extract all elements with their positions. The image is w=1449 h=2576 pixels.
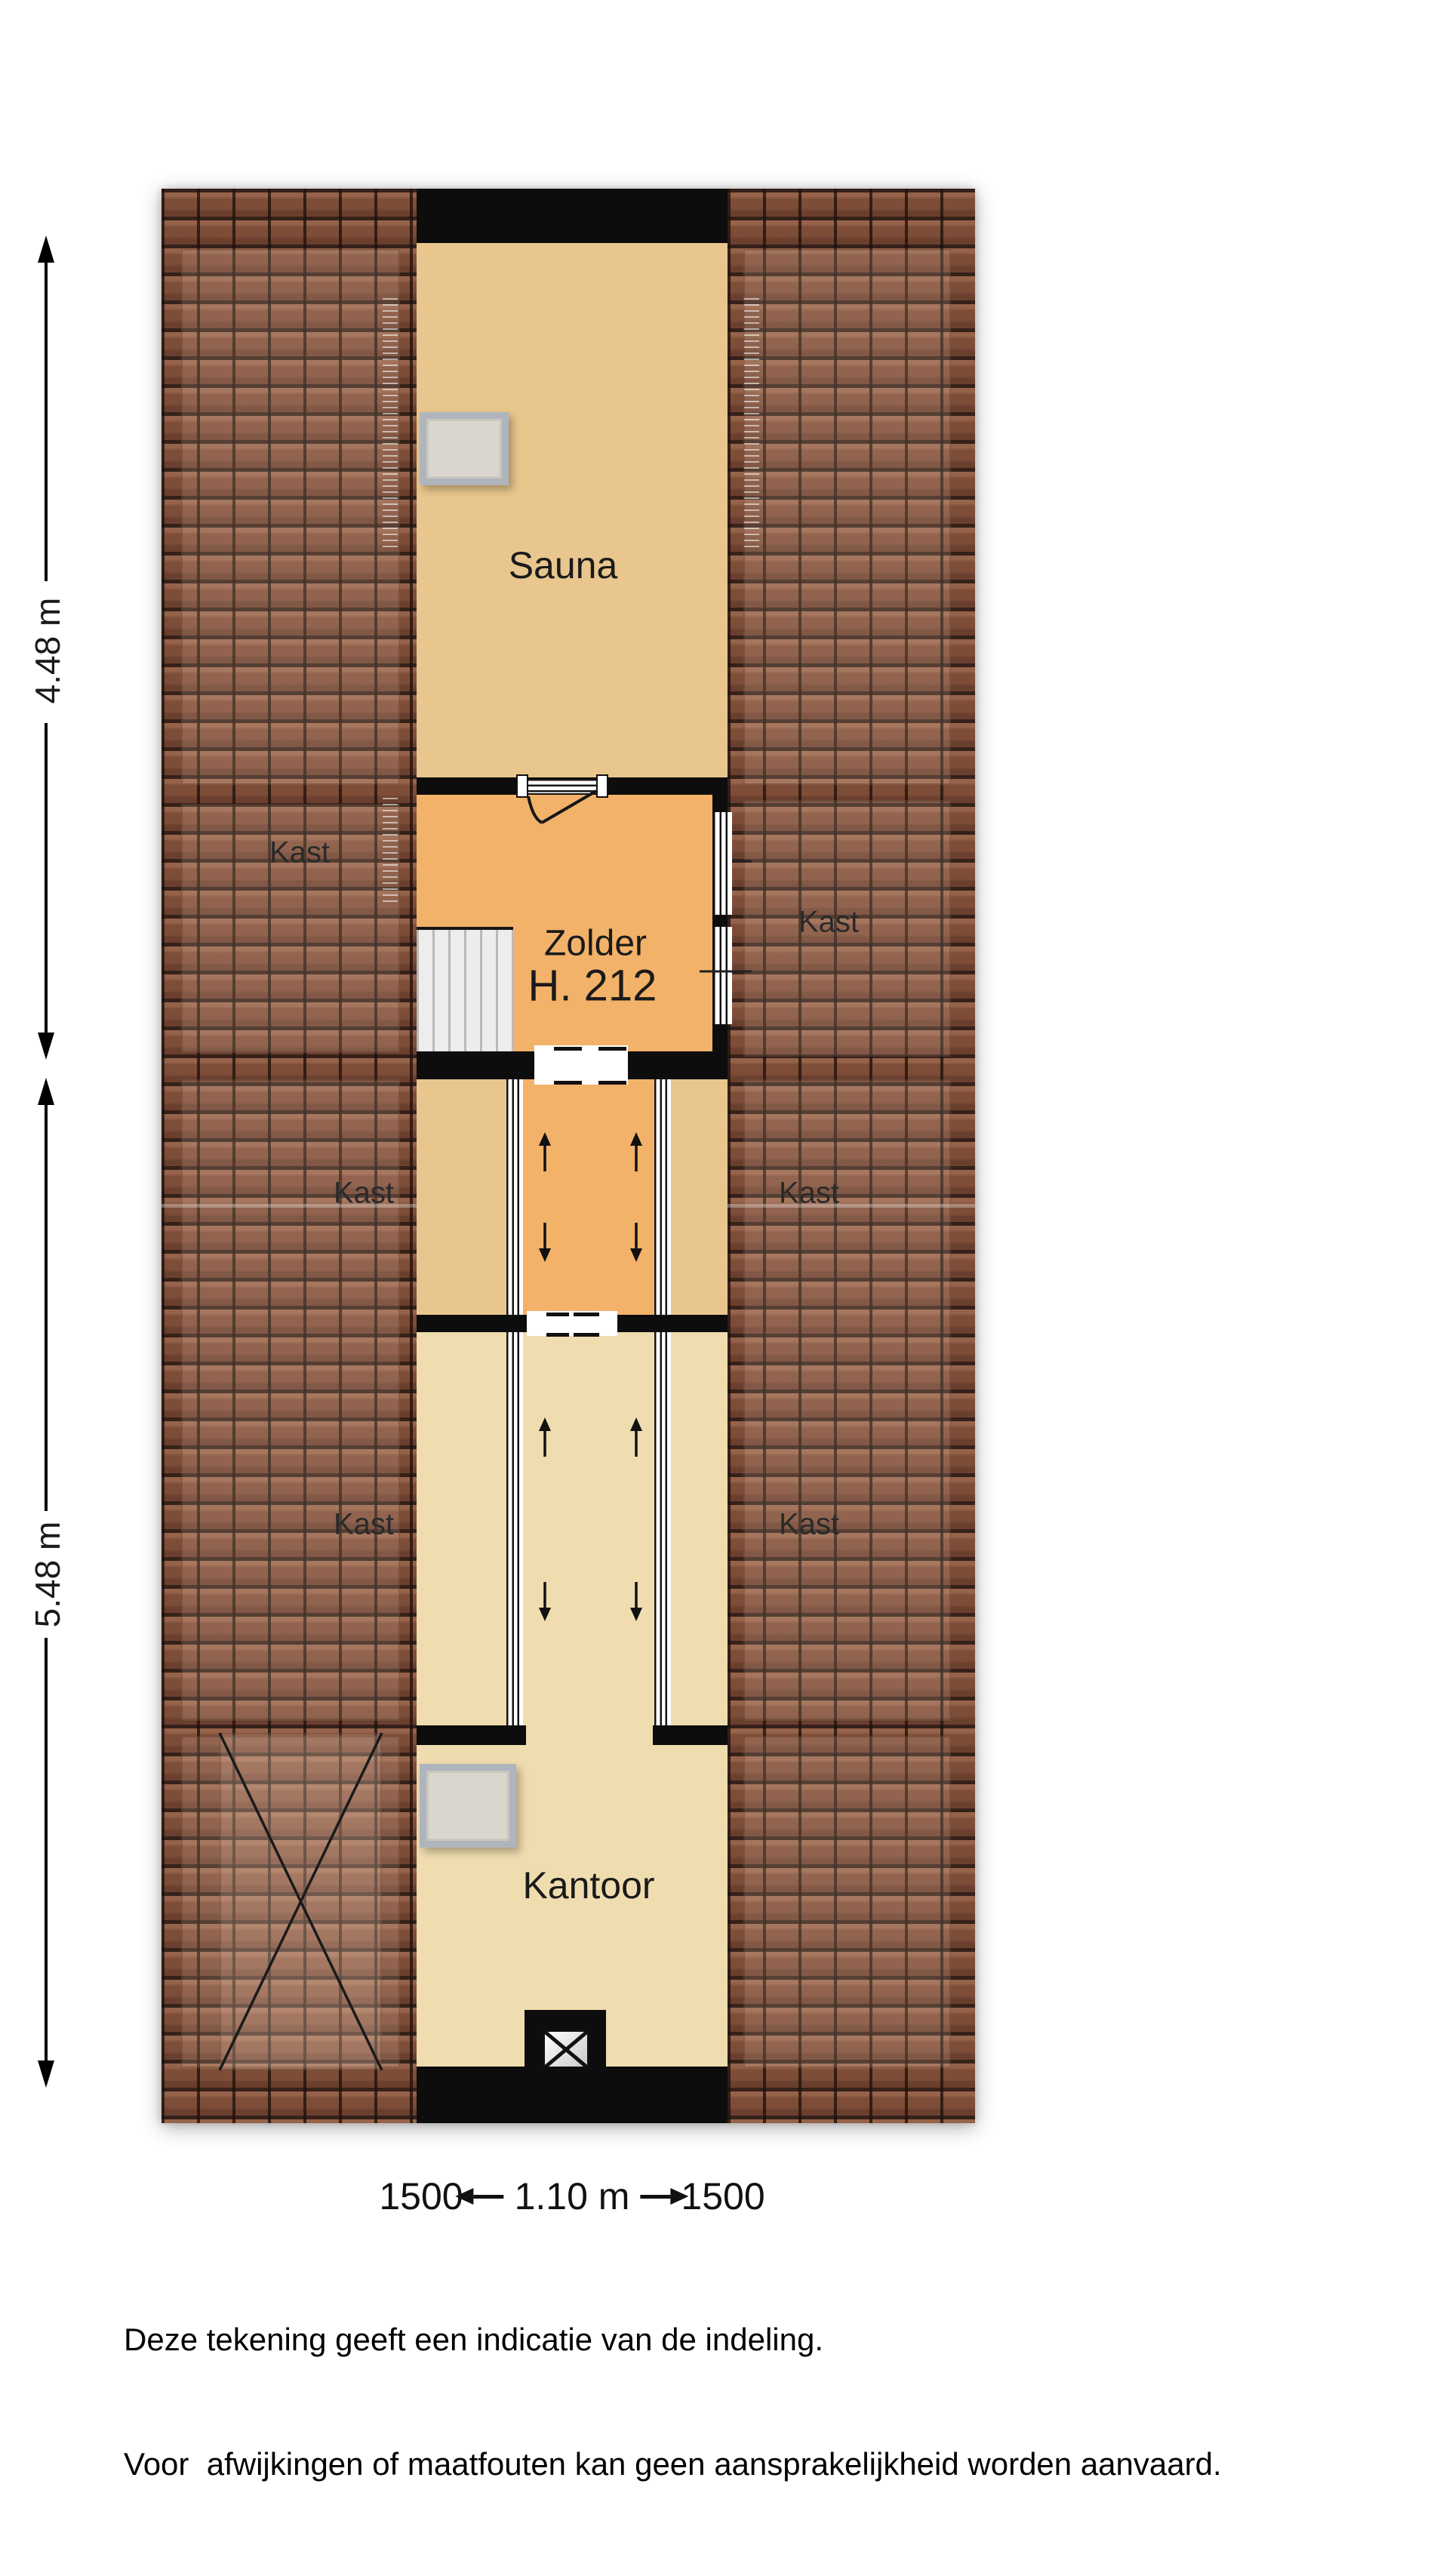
bottom-dim-left-value: 1500 bbox=[379, 2174, 463, 2218]
disclaimer-line-3: De aangegeven maten zijn circa maten. De… bbox=[124, 2568, 1232, 2576]
roof-highlight bbox=[743, 1079, 951, 1721]
kast-label-mid-right: Kast bbox=[779, 1177, 839, 1211]
knee-wall-left bbox=[506, 1079, 523, 1725]
door-post-left bbox=[516, 774, 528, 798]
sauna-roof-window bbox=[420, 412, 509, 485]
bottom-wall bbox=[417, 2067, 728, 2123]
kast-floor-left-upper bbox=[417, 1079, 506, 1315]
kast-label-low-right: Kast bbox=[779, 1508, 839, 1542]
sliding-door-upper bbox=[534, 1045, 628, 1085]
roof-ladder-hatch bbox=[744, 298, 759, 551]
staircase bbox=[417, 927, 513, 1051]
wall-stub-right bbox=[653, 1725, 728, 1745]
zolder-window-lower bbox=[713, 927, 732, 1024]
kast-floor-right-upper bbox=[671, 1079, 728, 1315]
crossed-roof-area bbox=[220, 1733, 382, 2070]
corridor-lower bbox=[523, 1332, 654, 1725]
top-wall bbox=[417, 189, 728, 243]
roof-highlight bbox=[743, 249, 951, 785]
door-opening bbox=[528, 779, 596, 793]
wall-stub-left bbox=[417, 1725, 526, 1745]
dimension-label-lower: 5.48 m bbox=[27, 1522, 68, 1628]
room-sauna bbox=[417, 243, 728, 777]
door-post-right bbox=[596, 774, 608, 798]
room-label-zolder: Zolder bbox=[544, 923, 647, 965]
dimension-label-upper: 4.48 m bbox=[27, 598, 68, 704]
bottom-dimension-row: 1500 1.10 m 1500 bbox=[379, 2174, 764, 2218]
kast-label-upper-right: Kast bbox=[798, 906, 859, 940]
disclaimer-text: Deze tekening geeft een indicatie van de… bbox=[124, 2236, 1232, 2576]
roof-highlight bbox=[181, 1079, 400, 1721]
kantoor-roof-window bbox=[420, 1764, 516, 1848]
roof-ladder-hatch bbox=[383, 298, 398, 551]
kast-floor-right-lower bbox=[671, 1332, 728, 1725]
arrow-left-icon bbox=[474, 2195, 504, 2199]
ridge-line bbox=[728, 1204, 975, 1208]
floorplan-page: Sauna Zolder H. 212 Kantoor Kast Kast Ka… bbox=[0, 0, 1449, 2576]
disclaimer-line-2: Voor afwijkingen of maatfouten kan geen … bbox=[124, 2443, 1232, 2485]
sliding-door-lower bbox=[527, 1311, 617, 1336]
corridor-upper bbox=[523, 1079, 654, 1315]
kast-floor-left-lower bbox=[417, 1332, 506, 1725]
zolder-height-label: H. 212 bbox=[528, 961, 657, 1011]
room-label-kantoor: Kantoor bbox=[522, 1864, 654, 1907]
room-label-sauna: Sauna bbox=[509, 543, 618, 587]
disclaimer-line-1: Deze tekening geeft een indicatie van de… bbox=[124, 2319, 1232, 2360]
bottom-dim-center-value: 1.10 m bbox=[515, 2174, 630, 2218]
kast-label-mid-left: Kast bbox=[334, 1177, 394, 1211]
zolder-window-upper bbox=[713, 812, 732, 915]
kast-label-low-left: Kast bbox=[334, 1508, 394, 1542]
roof-highlight bbox=[181, 249, 400, 785]
roof-ladder-hatch bbox=[383, 798, 398, 903]
bottom-dim-right-value: 1500 bbox=[681, 2174, 764, 2218]
arrow-right-icon bbox=[640, 2195, 670, 2199]
knee-wall-right bbox=[654, 1079, 671, 1725]
kast-label-upper-left: Kast bbox=[269, 836, 330, 870]
roof-highlight bbox=[743, 1736, 951, 2068]
floor-plan bbox=[162, 189, 975, 2123]
shaft-symbol bbox=[543, 2030, 589, 2069]
